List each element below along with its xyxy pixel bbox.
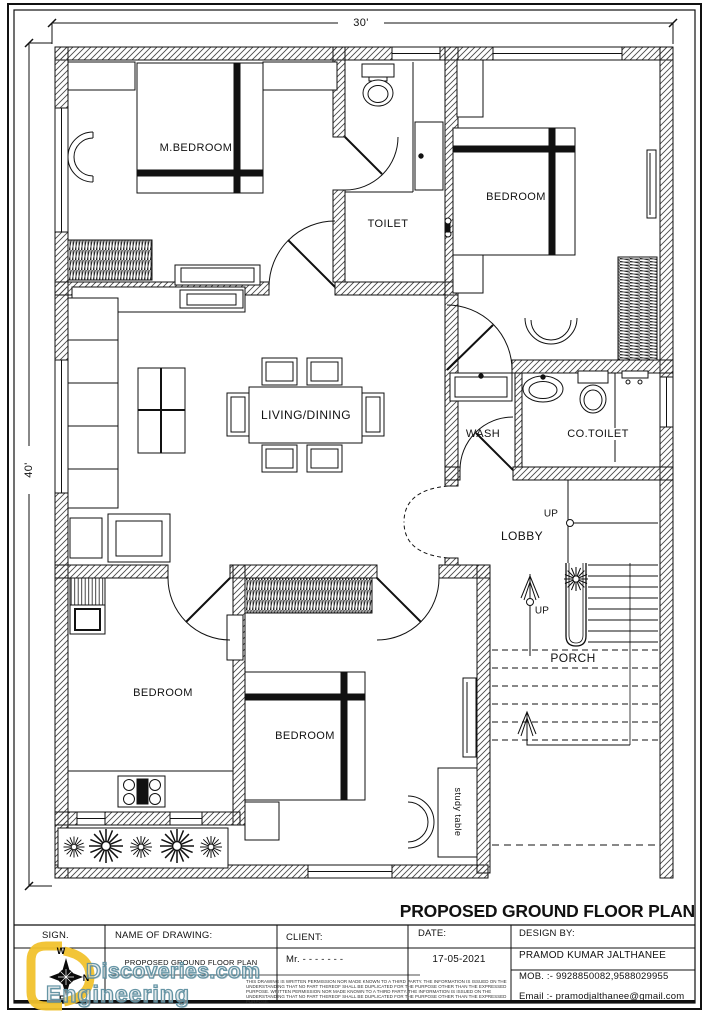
compass-west-label: W [57,946,66,956]
toilet-fixtures [345,62,451,237]
dimension-height-label: 40' [23,459,35,481]
room-label-porch: PORCH [548,651,597,665]
design-by-header: DESIGN BY: [519,928,575,939]
room-label-bedroom-bottom-left: BEDROOM [133,687,193,699]
dimension-width-label: 30' [350,17,372,29]
date-header: DATE: [418,928,446,939]
living-dining-furniture [68,287,384,562]
name-of-drawing-header: NAME OF DRAWING: [115,930,212,941]
room-label-bedroom-top-right: BEDROOM [486,191,546,203]
client-value: Mr. - - - - - - - [286,954,343,965]
floor-plan-drawing [0,0,709,1013]
client-header: CLIENT: [286,932,323,943]
room-label-toilet: TOILET [368,218,409,230]
floor-plan-sheet: 30' 40' M.BEDROOM TOILET BEDROOM LIVING/… [0,0,709,1013]
sign-header: SIGN. [42,930,69,941]
room-label-master-bedroom: M.BEDROOM [160,142,233,154]
bedroom-top-right-furniture [453,60,657,360]
date-value: 17-05-2021 [432,954,485,965]
master-bedroom-furniture [68,62,337,285]
watermark-engineering: Engineering [46,981,190,1008]
room-label-bedroom-bottom-middle: BEDROOM [275,730,335,742]
sheet-title: PROPOSED GROUND FLOOR PLAN [400,901,695,922]
study-table-label: study table [453,787,463,836]
bedroom-bottom-middle-furniture [227,578,477,857]
room-label-wash: WASH [466,428,500,440]
designer-email: Email :- pramodjalthanee@gmail.com [519,991,684,1002]
disclaimer-text: THIS DRAWING IS WRITTEN PERMISSION NOR M… [246,979,518,1004]
flower-bed [58,828,228,868]
room-label-living-dining: LIVING/DINING [261,408,351,422]
stairs-up-label-lobby: UP [544,509,558,520]
designer-name: PRAMOD KUMAR JALTHANEE [519,950,666,961]
designer-mobile: MOB. :- 9928850082,9588029955 [519,971,668,982]
wash-cotoilet-fixtures [450,371,648,462]
room-label-lobby: LOBBY [501,529,543,543]
room-label-co-toilet: CO.TOILET [565,428,630,440]
stairs-up-label-porch: UP [535,606,549,617]
